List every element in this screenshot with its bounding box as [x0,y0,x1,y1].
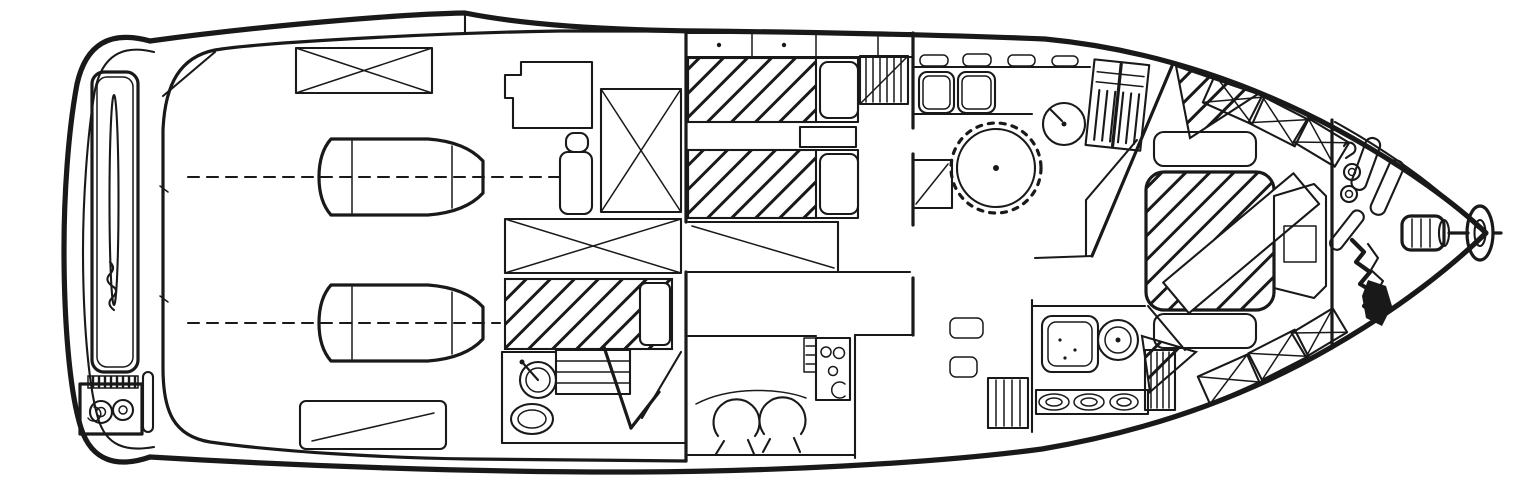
transom-gate [143,372,153,432]
side-bench [1154,132,1256,166]
chair [714,399,760,454]
deck-hatch [505,219,681,273]
burner [829,367,838,376]
fiddle-rail [963,54,991,66]
seat-cushion [950,318,983,338]
dinette [688,335,912,458]
chair [760,397,806,452]
aft-head [502,347,686,443]
companionway-steps [1086,59,1150,150]
dinette-table [951,123,1041,213]
mid-cabin [686,33,913,272]
windlass [1402,216,1449,250]
pillow [640,283,670,345]
shelf-locker [1198,355,1260,404]
vanity-counter [1036,390,1148,414]
companionway-stairs [604,347,681,428]
burner-sink [1043,103,1085,145]
aft-cabin [505,279,672,349]
bow-pulpit [1402,206,1501,260]
fiddle-rail [920,55,948,66]
muffler [560,152,592,214]
shelf-locker [1248,96,1308,146]
deck-fitting [113,400,133,420]
stove [804,338,850,400]
pillow [820,62,858,118]
shelf-locker [1248,330,1308,380]
generator-box [505,62,592,128]
steps [988,378,1028,428]
burner [821,347,831,357]
berth-cushion [688,150,816,218]
deck-hatch [601,89,681,212]
yacht-floor-plan [0,0,1533,504]
fiddle-rail [1052,56,1078,66]
swim-platform [80,72,153,434]
deck-hatch [296,48,432,93]
shelf-locker [1292,308,1348,357]
anchor-chain [1352,240,1392,326]
seat-cushion [950,357,977,377]
deck-bench [300,401,446,449]
burner [834,348,845,359]
nightstand [800,127,856,147]
boat-hook-locker [92,72,138,372]
refrigerator [913,160,952,208]
floor-plan-drawing [0,0,1533,504]
shower-pan [1042,316,1098,372]
ladder [860,56,908,104]
berth-cushion [688,58,816,122]
aft-deck [160,31,686,461]
pillow [820,154,858,214]
fiddle-rail [1008,55,1035,66]
